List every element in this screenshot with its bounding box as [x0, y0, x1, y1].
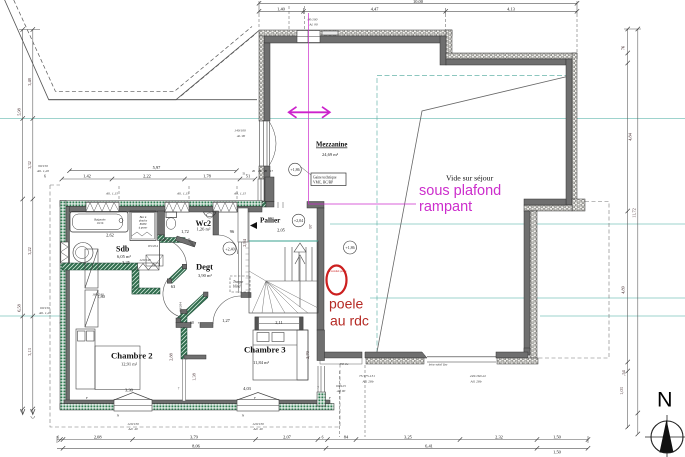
svg-text:Al. 90: Al. 90 [308, 23, 318, 27]
svg-text:3,13: 3,13 [27, 348, 33, 356]
svg-text:All 90: All 90 [336, 389, 346, 393]
svg-text:5,97: 5,97 [153, 165, 161, 171]
svg-text:N: N [117, 414, 120, 418]
svg-text:6: 6 [322, 436, 324, 440]
svg-text:Mezzanine: Mezzanine [316, 142, 347, 149]
svg-text:2,88: 2,88 [168, 353, 174, 361]
svg-text:sous plafond: sous plafond [419, 183, 501, 199]
svg-text:Al. 90: Al. 90 [236, 134, 246, 138]
svg-text:Chambre 2: Chambre 2 [111, 351, 153, 361]
svg-text:F: F [329, 396, 331, 400]
svg-text:Degt: Degt [196, 262, 213, 272]
svg-text:249/160-22: 249/160-22 [470, 374, 486, 378]
svg-text:12,91 m²: 12,91 m² [121, 362, 138, 368]
svg-text:2,62: 2,62 [106, 232, 114, 238]
svg-text:2,05: 2,05 [277, 228, 285, 234]
svg-text:84: 84 [344, 435, 349, 440]
svg-text:6,58: 6,58 [17, 304, 23, 312]
svg-text:180/240: 180/240 [92, 292, 104, 296]
svg-text:20: 20 [258, 169, 262, 173]
svg-text:83/204: 83/204 [148, 244, 158, 248]
svg-text:à poser: à poser [139, 226, 148, 230]
svg-text:24,69 m²: 24,69 m² [322, 152, 339, 158]
svg-text:W.conduit poele: W.conduit poele [328, 269, 347, 273]
svg-text:75/175-131: 75/175-131 [359, 374, 375, 378]
svg-text:96: 96 [230, 229, 235, 234]
svg-text:N: N [242, 414, 245, 418]
svg-text:6: 6 [44, 175, 46, 179]
svg-text:All. 1,20: All. 1,20 [38, 311, 51, 316]
svg-text:7: 7 [198, 321, 200, 325]
svg-text:F: F [254, 396, 256, 400]
svg-text:90/204: 90/204 [179, 302, 183, 312]
svg-text:All. 1,15: All. 1,15 [105, 192, 118, 197]
svg-text:63: 63 [171, 284, 176, 289]
svg-text:All. 40: All. 40 [252, 427, 263, 431]
svg-text:19/1b: 19/1b [97, 221, 104, 225]
svg-text:1,03: 1,03 [619, 387, 625, 395]
svg-text:11,72: 11,72 [632, 208, 638, 218]
svg-text:Sdb: Sdb [116, 245, 130, 254]
svg-text:7: 7 [317, 386, 319, 390]
svg-text:All. 28b: All. 28b [469, 380, 481, 384]
svg-text:5,98: 5,98 [17, 108, 23, 116]
svg-text:20: 20 [252, 169, 256, 173]
svg-text:1,26 m²: 1,26 m² [197, 227, 212, 233]
svg-text:N: N [657, 388, 673, 412]
svg-text:4,03: 4,03 [243, 386, 251, 392]
svg-text:3,48: 3,48 [27, 78, 33, 86]
svg-text:120/240: 120/240 [139, 258, 151, 262]
svg-text:3,32: 3,32 [27, 161, 33, 169]
svg-text:97: 97 [308, 224, 313, 229]
svg-text:51: 51 [242, 172, 246, 176]
svg-text:2,11: 2,11 [275, 320, 283, 326]
svg-text:1,38: 1,38 [192, 373, 198, 381]
svg-text:Vide sur séjour: Vide sur séjour [446, 174, 494, 183]
svg-text:brise-soleil fixe: brise-soleil fixe [429, 363, 448, 367]
svg-text:1,72: 1,72 [181, 229, 189, 235]
svg-text:au rdc: au rdc [330, 313, 369, 329]
svg-text:4,84: 4,84 [628, 132, 634, 140]
svg-text:140/100: 140/100 [234, 129, 246, 133]
svg-text:20: 20 [264, 169, 268, 173]
svg-text:60/125: 60/125 [336, 384, 346, 388]
svg-text:rampant: rampant [419, 199, 472, 215]
svg-text:350 tiw: 350 tiw [340, 362, 349, 366]
svg-text:Pallier: Pallier [260, 217, 281, 225]
svg-text:blind: blind [233, 285, 241, 289]
svg-text:76: 76 [621, 45, 626, 50]
svg-text:17: 17 [270, 169, 274, 173]
svg-text:60/150: 60/150 [40, 306, 50, 310]
svg-text:4,89: 4,89 [621, 286, 627, 294]
svg-text:F: F [86, 396, 88, 400]
svg-text:All. 1,15: All. 1,15 [233, 192, 246, 197]
svg-text:1,50: 1,50 [553, 450, 561, 456]
svg-text:11,84 m²: 11,84 m² [253, 360, 270, 366]
svg-text:Gaine technique: Gaine technique [313, 175, 337, 179]
svg-text:6: 6 [57, 436, 59, 440]
svg-text:120/130: 120/130 [252, 422, 264, 426]
svg-text:7: 7 [178, 386, 180, 390]
svg-text:Chambre 3: Chambre 3 [244, 345, 286, 355]
svg-text:80/100: 80/100 [308, 18, 318, 22]
svg-text:poele: poele [329, 296, 363, 312]
svg-text:All. 1,20: All. 1,20 [36, 169, 49, 174]
svg-text:All. 28b: All. 28b [361, 380, 373, 384]
svg-text:3,90 m²: 3,90 m² [198, 273, 213, 279]
svg-text:51: 51 [246, 174, 250, 179]
svg-text:90/150: 90/150 [38, 164, 48, 168]
svg-text:3,22: 3,22 [27, 247, 33, 255]
svg-text:6,05 m²: 6,05 m² [117, 254, 132, 260]
svg-text:All. 40: All. 40 [127, 427, 138, 431]
svg-text:All. 1,15: All. 1,15 [176, 192, 189, 197]
svg-text:60: 60 [190, 321, 194, 325]
svg-text:120/130: 120/130 [127, 422, 139, 426]
svg-text:2,70: 2,70 [305, 351, 311, 359]
svg-text:10,00: 10,00 [413, 0, 424, 5]
svg-text:Trappe: Trappe [233, 280, 244, 284]
svg-text:1,27: 1,27 [222, 318, 230, 324]
